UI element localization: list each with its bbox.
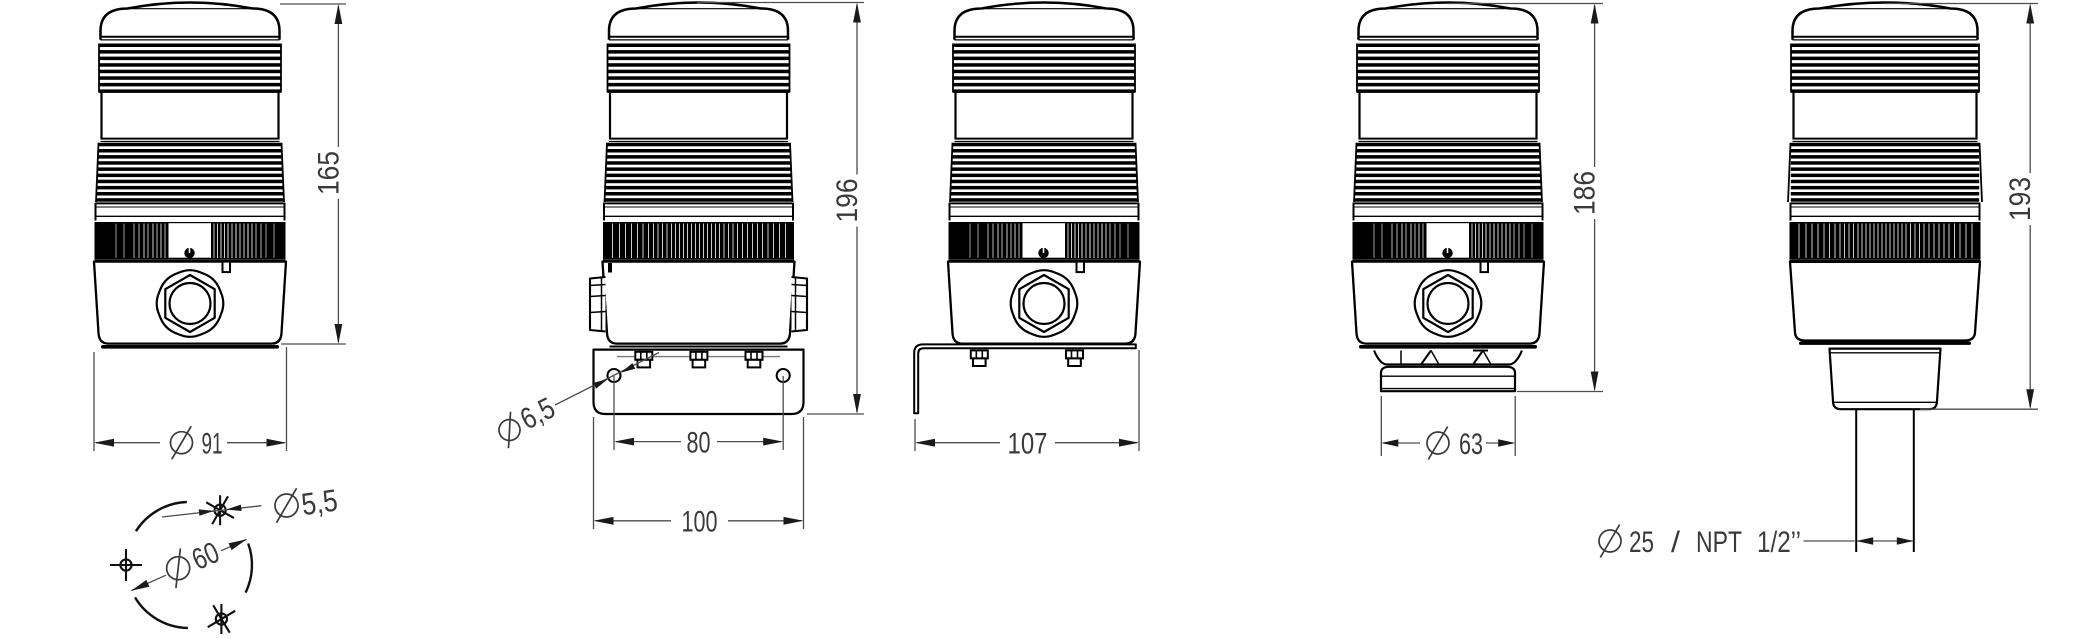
svg-text:5,5: 5,5 [299,482,340,522]
svg-text:107: 107 [1008,428,1048,461]
svg-text:63: 63 [1459,428,1483,461]
svg-text:25: 25 [1629,526,1654,559]
svg-text:NPT: NPT [1696,526,1742,559]
svg-text:196: 196 [831,179,864,223]
svg-text:91: 91 [202,428,223,461]
svg-text:/: / [1671,526,1681,559]
svg-text:193: 193 [2004,177,2037,221]
svg-text:1/2’’: 1/2’’ [1757,526,1801,559]
svg-text:165: 165 [312,151,345,195]
svg-text:186: 186 [1569,171,1602,215]
svg-text:80: 80 [687,427,711,460]
svg-text:100: 100 [682,506,718,539]
